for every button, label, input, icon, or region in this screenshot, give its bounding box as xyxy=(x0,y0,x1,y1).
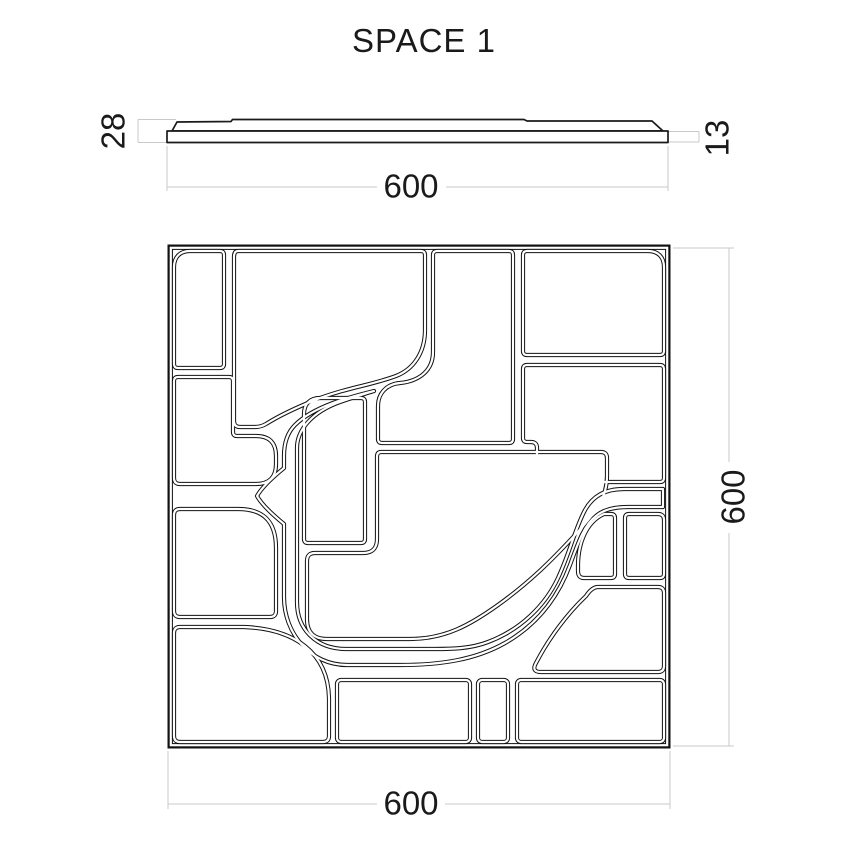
dim-label-13: 13 xyxy=(699,120,736,157)
dim-600-bottom: 600 xyxy=(168,751,670,822)
dim-label-600-right: 600 xyxy=(715,469,752,524)
front-view: 600 600 xyxy=(168,246,752,822)
dim-label-600-bottom: 600 xyxy=(383,785,438,822)
profile-view: 28 13 600 xyxy=(95,113,736,205)
profile-base-layer xyxy=(167,131,668,143)
panel-spec-drawing: SPACE 1 28 13 600 xyxy=(0,0,848,848)
dim-600-right: 600 xyxy=(673,248,752,746)
technical-drawing: 28 13 600 xyxy=(0,0,848,848)
dim-13: 13 xyxy=(668,120,736,157)
dim-label-28: 28 xyxy=(95,113,132,150)
dim-label-600-profile: 600 xyxy=(383,168,438,205)
dim-600-profile: 600 xyxy=(167,146,668,205)
tiles-outline-pass xyxy=(174,251,664,742)
profile-relief-layer xyxy=(172,120,663,132)
dim-28: 28 xyxy=(95,113,177,150)
